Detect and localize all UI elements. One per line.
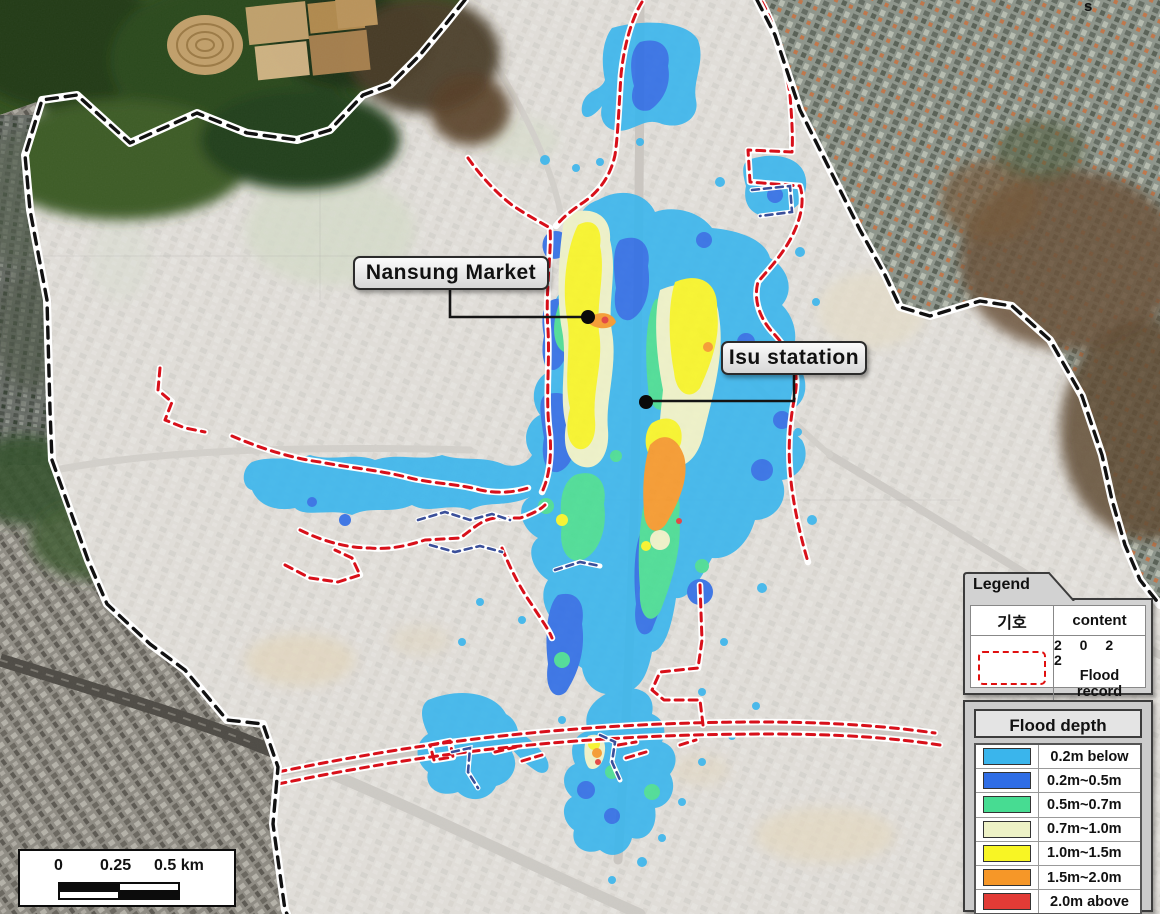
scale-bar-graphic bbox=[58, 882, 180, 900]
isu-callout-dot bbox=[639, 395, 653, 409]
color-swatch bbox=[983, 772, 1031, 789]
color-swatch bbox=[983, 748, 1031, 765]
flood-record-content-cell: 2 0 2 2 Flood record bbox=[1054, 636, 1145, 700]
swatch-cell bbox=[976, 890, 1039, 913]
scale-label-start: 0 bbox=[54, 857, 63, 875]
content-header-cell: content bbox=[1054, 606, 1145, 635]
flood-class-label: 1.5m~2.0m bbox=[1039, 866, 1140, 889]
flood-depth-row: 1.5m~2.0m bbox=[976, 866, 1140, 890]
flood-depth-row: 0.2m below bbox=[976, 745, 1140, 769]
color-swatch bbox=[983, 845, 1031, 862]
flood-depth-panel: Flood depth 0.2m below0.2m~0.5m0.5m~0.7m… bbox=[963, 700, 1153, 912]
stray-mark: s bbox=[1084, 0, 1092, 15]
flood-record-label: Flood record bbox=[1070, 668, 1130, 700]
flood-class-label: 0.7m~1.0m bbox=[1039, 818, 1140, 841]
symbol-header-cell: 기호 bbox=[971, 606, 1054, 635]
swatch-cell bbox=[976, 842, 1039, 865]
annotation-label-nansung-market: Nansung Market bbox=[353, 256, 549, 290]
legend-title: Legend bbox=[973, 576, 1030, 594]
flood-depth-row: 0.2m~0.5m bbox=[976, 769, 1140, 793]
flood-record-year: 2 0 2 2 bbox=[1054, 638, 1145, 668]
flood-depth-row: 1.0m~1.5m bbox=[976, 842, 1140, 866]
flood-depth-row: 2.0m above bbox=[976, 890, 1140, 913]
color-swatch bbox=[983, 821, 1031, 838]
annotation-label-isu-station: Isu statation bbox=[721, 341, 867, 375]
swatch-cell bbox=[976, 793, 1039, 816]
flood-depth-row: 0.7m~1.0m bbox=[976, 818, 1140, 842]
legend-table: 기호 content 2 0 2 2 Flood record bbox=[963, 598, 1153, 695]
flood-depth-title: Flood depth bbox=[974, 709, 1142, 738]
legend-tab: Legend bbox=[963, 572, 1075, 600]
swatch-cell bbox=[976, 866, 1039, 889]
flood-class-label: 2.0m above bbox=[1039, 890, 1140, 913]
nansung-callout-dot bbox=[581, 310, 595, 324]
flood-map-figure: Nansung Market Isu statation s Legend 기호… bbox=[0, 0, 1160, 914]
legend-panel: Legend 기호 content 2 0 2 2 Flood record bbox=[963, 572, 1153, 695]
flood-class-label: 0.2m~0.5m bbox=[1039, 769, 1140, 792]
flood-depth-rows: 0.2m below0.2m~0.5m0.5m~0.7m0.7m~1.0m1.0… bbox=[974, 743, 1142, 914]
color-swatch bbox=[983, 869, 1031, 886]
flood-record-symbol-cell bbox=[971, 636, 1054, 700]
color-swatch bbox=[983, 893, 1031, 910]
scale-bar: 0 0.25 0.5 km bbox=[18, 849, 236, 907]
flood-record-symbol bbox=[978, 651, 1046, 685]
swatch-cell bbox=[976, 769, 1039, 792]
color-swatch bbox=[983, 796, 1031, 813]
scale-label-end: 0.5 km bbox=[154, 857, 204, 875]
flood-class-label: 0.2m below bbox=[1039, 745, 1140, 768]
flood-class-label: 0.5m~0.7m bbox=[1039, 793, 1140, 816]
swatch-cell bbox=[976, 818, 1039, 841]
swatch-cell bbox=[976, 745, 1039, 768]
scale-label-mid: 0.25 bbox=[100, 857, 131, 875]
flood-depth-row: 0.5m~0.7m bbox=[976, 793, 1140, 817]
flood-class-label: 1.0m~1.5m bbox=[1039, 842, 1140, 865]
